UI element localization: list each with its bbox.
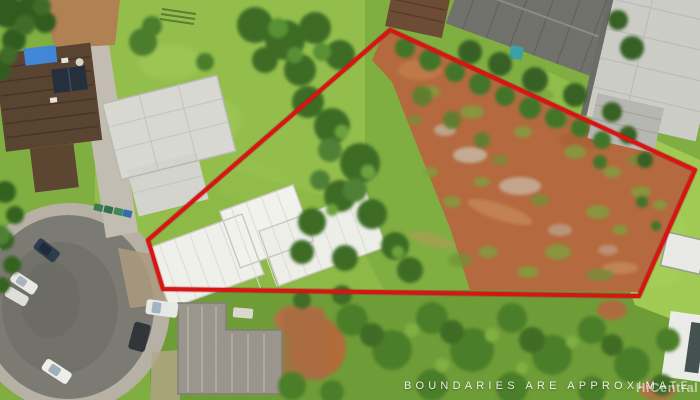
photo-grain <box>0 0 700 400</box>
watermark-text: HiCentral ML <box>636 380 700 395</box>
aerial-photo: BOUNDARIES ARE APPROXIMATE HiCentral ML <box>0 0 700 400</box>
aerial-photo-scene <box>0 0 700 400</box>
